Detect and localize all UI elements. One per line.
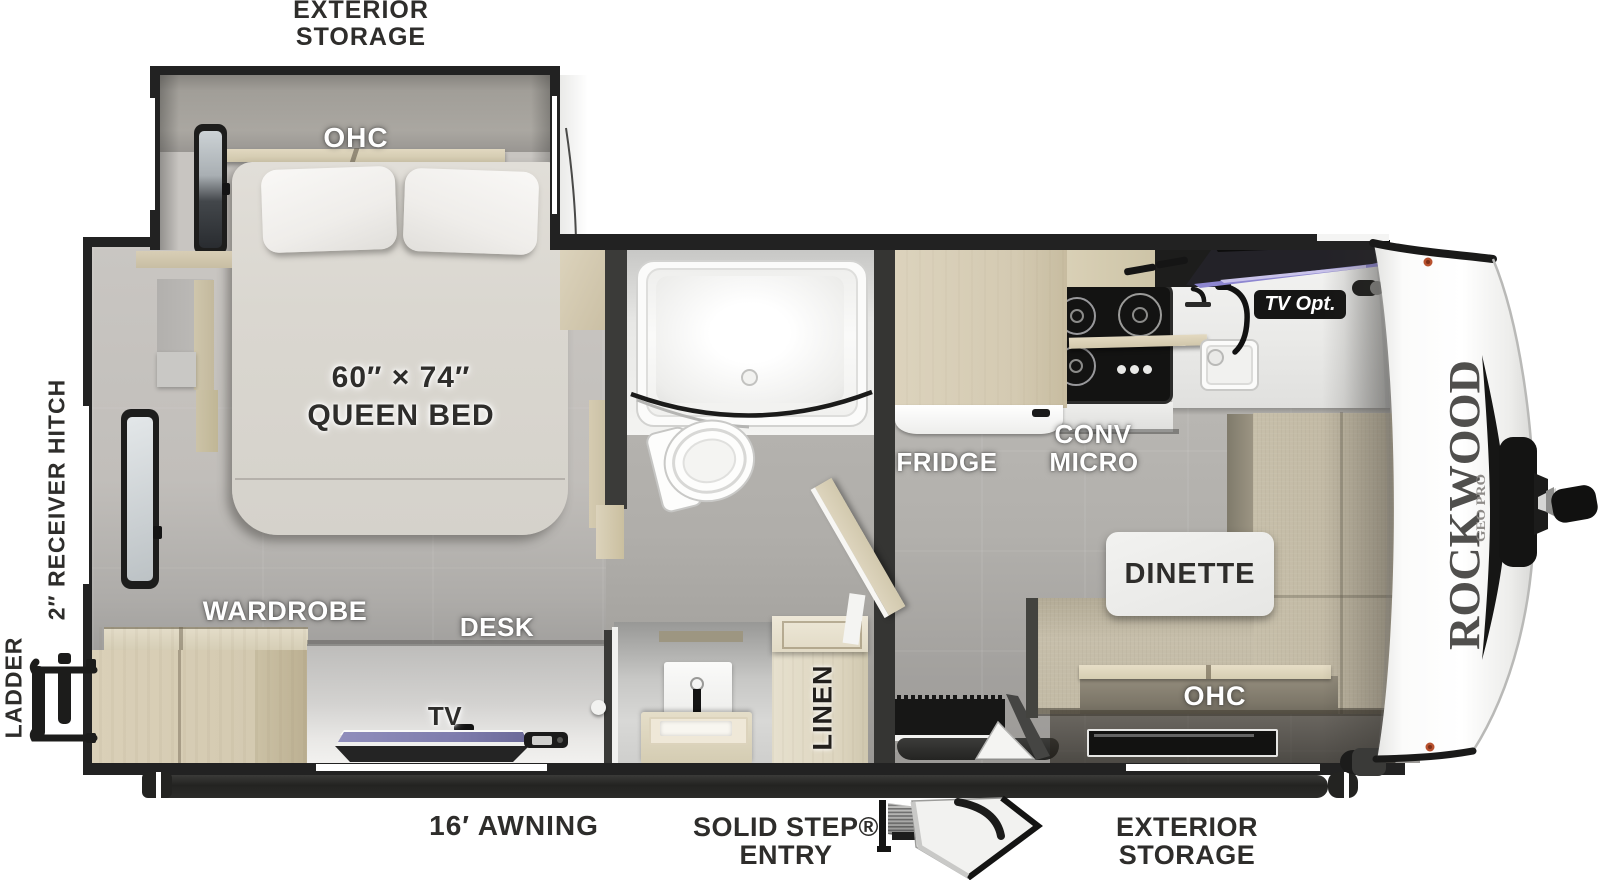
svg-text:GEO PRO: GEO PRO <box>1473 474 1488 542</box>
